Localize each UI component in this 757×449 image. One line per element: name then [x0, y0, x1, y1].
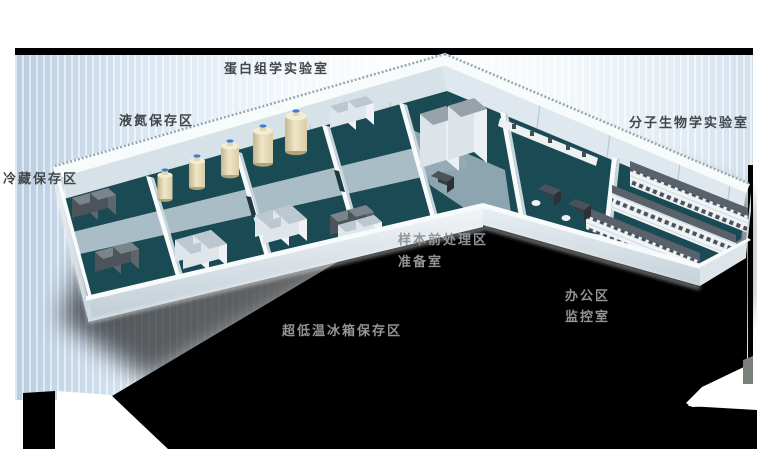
label-office: 办公区	[565, 285, 610, 304]
floorplan-3d-render	[0, 0, 757, 449]
label-protein-lab: 蛋白组学实验室	[224, 58, 329, 77]
label-sample-pretreatment: 样本前处理区	[398, 229, 488, 248]
label-molecular-lab: 分子生物学实验室	[629, 112, 749, 131]
label-ln2-storage: 液氮保存区	[119, 110, 194, 129]
label-monitor-room: 监控室	[565, 306, 610, 325]
label-prep-room: 准备室	[398, 251, 443, 270]
lab-floorplan-screenshot: 蛋白组学实验室 液氮保存区 冷藏保存区 分子生物学实验室 样本前处理区 准备室 …	[0, 0, 757, 449]
label-ult-freezer: 超低温冰箱保存区	[282, 320, 402, 339]
label-cold-storage: 冷藏保存区	[3, 168, 78, 187]
